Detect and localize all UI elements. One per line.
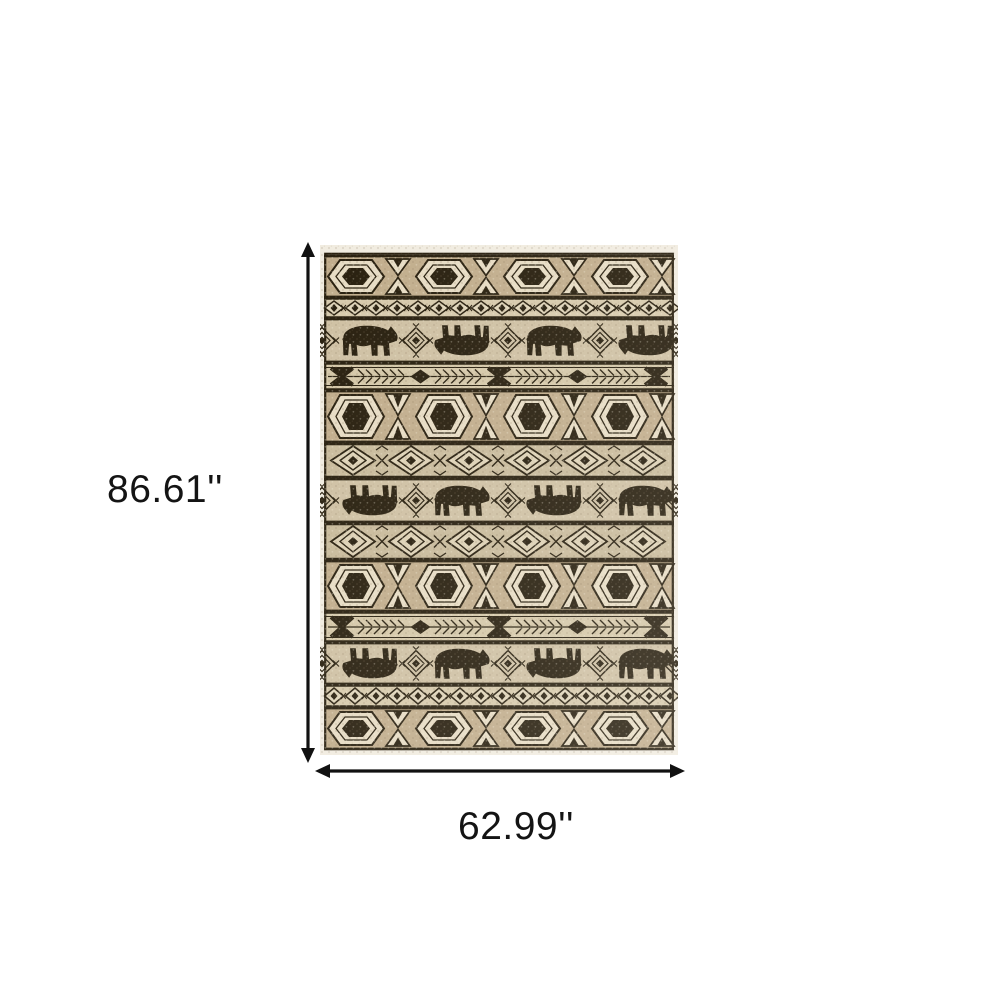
arrowhead-right-icon [670, 764, 685, 778]
rug-illustration [320, 245, 678, 755]
height-dimension-arrow [297, 238, 319, 768]
width-dimension-arrow [311, 759, 691, 783]
arrowhead-up-icon [301, 242, 315, 257]
rug-image [320, 245, 678, 755]
arrowhead-left-icon [315, 764, 330, 778]
product-dimension-diagram: 86.61'' 62.99'' [0, 0, 1000, 1000]
width-dimension-label: 62.99'' [458, 805, 574, 849]
height-dimension-label: 86.61'' [107, 468, 223, 512]
